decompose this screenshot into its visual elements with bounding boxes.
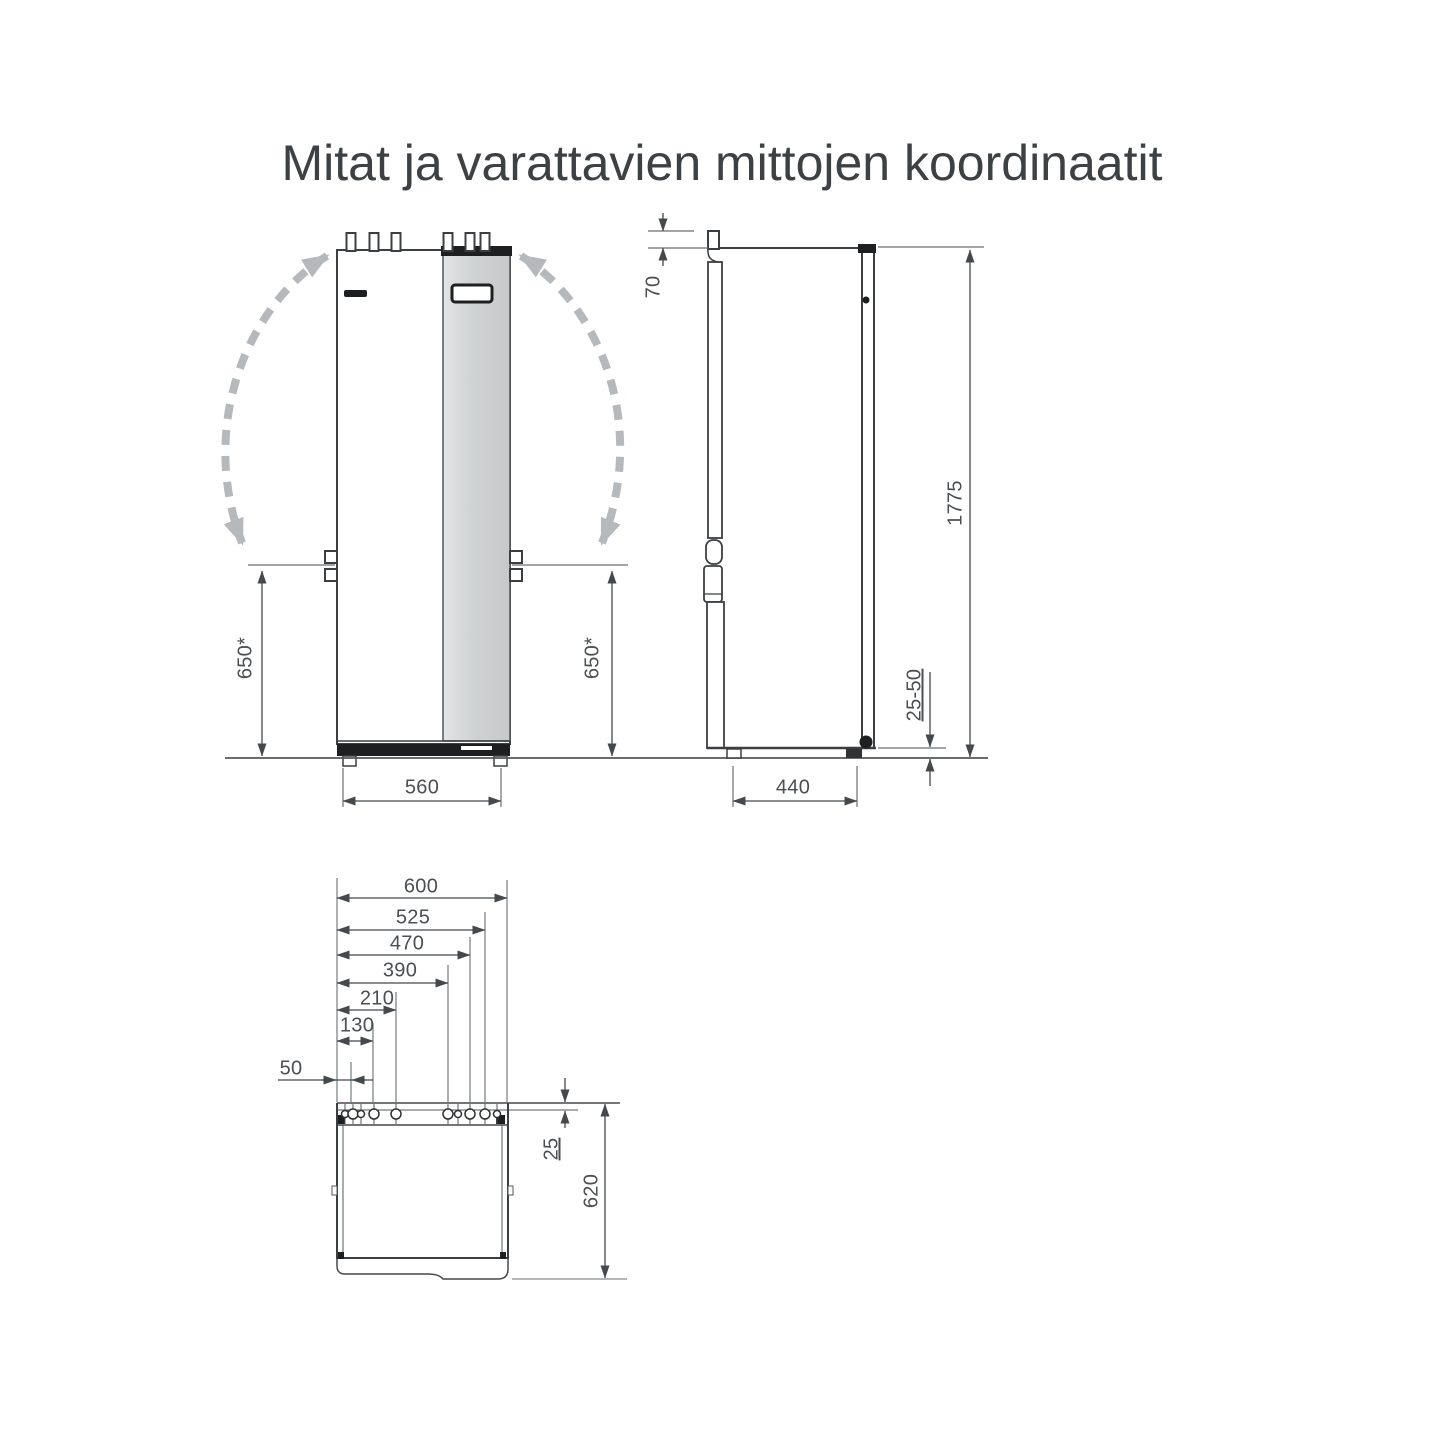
dim-label-front-width: 560 <box>405 777 439 800</box>
dim-label-side-depth: 440 <box>776 777 810 800</box>
front-view <box>225 233 628 807</box>
dim-650-left-lines <box>248 565 335 756</box>
dim-650-right-lines <box>512 565 628 756</box>
dim-620-lines <box>512 1104 627 1279</box>
dimension-drawing-page: Mitat ja varattavien mittojen koordinaat… <box>0 0 1438 1438</box>
hinges-right <box>510 551 522 581</box>
dim-label-pipe-470: 470 <box>390 933 424 956</box>
foot-back <box>846 749 862 758</box>
logo-badge <box>344 290 367 297</box>
foot-front <box>727 749 741 758</box>
top-pipe-stubs <box>347 233 490 251</box>
dim-label-top-depth: 620 <box>581 1174 604 1208</box>
dim-label-front-height-right: 650* <box>582 637 605 679</box>
top-unit <box>332 1103 620 1279</box>
dim-label-pipe-390: 390 <box>383 960 417 983</box>
dim-label-top-width: 600 <box>404 876 438 899</box>
dim-label-pipe-50: 50 <box>280 1058 303 1081</box>
front-unit <box>337 246 512 766</box>
dim-label-total-height: 1775 <box>945 480 968 526</box>
dim-1775-lines <box>878 247 984 757</box>
side-view <box>648 213 984 807</box>
pipe-connections <box>342 1104 501 1124</box>
display-panel <box>452 285 492 302</box>
top-view <box>278 878 627 1279</box>
door-swing-arc-left <box>225 256 327 543</box>
hinges-left <box>325 551 337 581</box>
dim-70-lines <box>648 213 708 266</box>
dim-label-front-height-left: 650* <box>235 637 258 679</box>
side-unit <box>704 231 876 758</box>
dim-label-pipe-row-offset: 25 <box>541 1138 564 1161</box>
dim-label-foot-adjustment: 25-50 <box>904 669 927 722</box>
dim-label-pipe-130: 130 <box>340 1015 374 1038</box>
dim-label-pipe-525: 525 <box>396 907 430 930</box>
dim-label-pipe-height: 70 <box>643 276 666 299</box>
dim-label-pipe-210: 210 <box>360 988 394 1011</box>
door-swing-arc-right <box>521 256 620 543</box>
page-title: Mitat ja varattavien mittojen koordinaat… <box>282 134 1163 192</box>
technical-drawing <box>0 0 1438 1438</box>
side-pipe-stub <box>708 231 719 249</box>
